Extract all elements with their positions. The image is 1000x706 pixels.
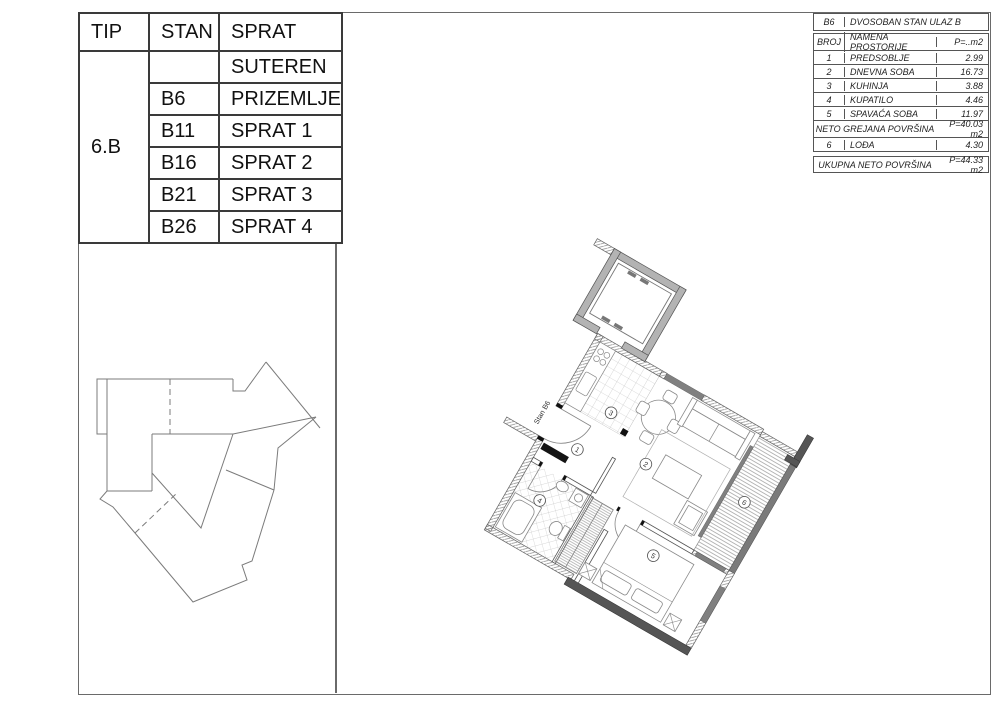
bedroom-window <box>700 586 725 623</box>
stan-cell: B16 <box>149 147 219 179</box>
sprat-cell: SPRAT 2 <box>219 147 342 179</box>
coffee-table <box>652 455 701 499</box>
type-floor-table: TIP STAN SPRAT 6.B SUTEREN B6 PRIZEMLJE … <box>78 12 343 244</box>
elevator-shaft <box>573 249 686 362</box>
stan-cell <box>149 51 219 83</box>
tip-value: 6.B <box>79 51 149 243</box>
sprat-cell: SPRAT 4 <box>219 211 342 243</box>
header-tip: TIP <box>79 13 149 51</box>
sprat-cell: PRIZEMLJE <box>219 83 342 115</box>
doormat <box>540 443 569 464</box>
sprat-cell: SPRAT 3 <box>219 179 342 211</box>
sprat-cell: SPRAT 1 <box>219 115 342 147</box>
wall <box>593 457 616 493</box>
site-wing-rect <box>97 379 107 434</box>
header-sprat: SPRAT <box>219 13 342 51</box>
sprat-cell: SUTEREN <box>219 51 342 83</box>
unit-label: Stan B6 <box>532 399 553 426</box>
stan-cell: B11 <box>149 115 219 147</box>
stan-cell: B6 <box>149 83 219 115</box>
floor-plan: 1 2 3 4 5 6 Stan B6 <box>336 13 989 692</box>
plan-sheet: { "left_table": { "headers": { "tip": "T… <box>0 0 1000 706</box>
header-stan: STAN <box>149 13 219 51</box>
stair-wall-stub <box>594 239 615 255</box>
stan-cell: B21 <box>149 179 219 211</box>
stan-cell: B26 <box>149 211 219 243</box>
site-key-plan <box>79 258 335 692</box>
